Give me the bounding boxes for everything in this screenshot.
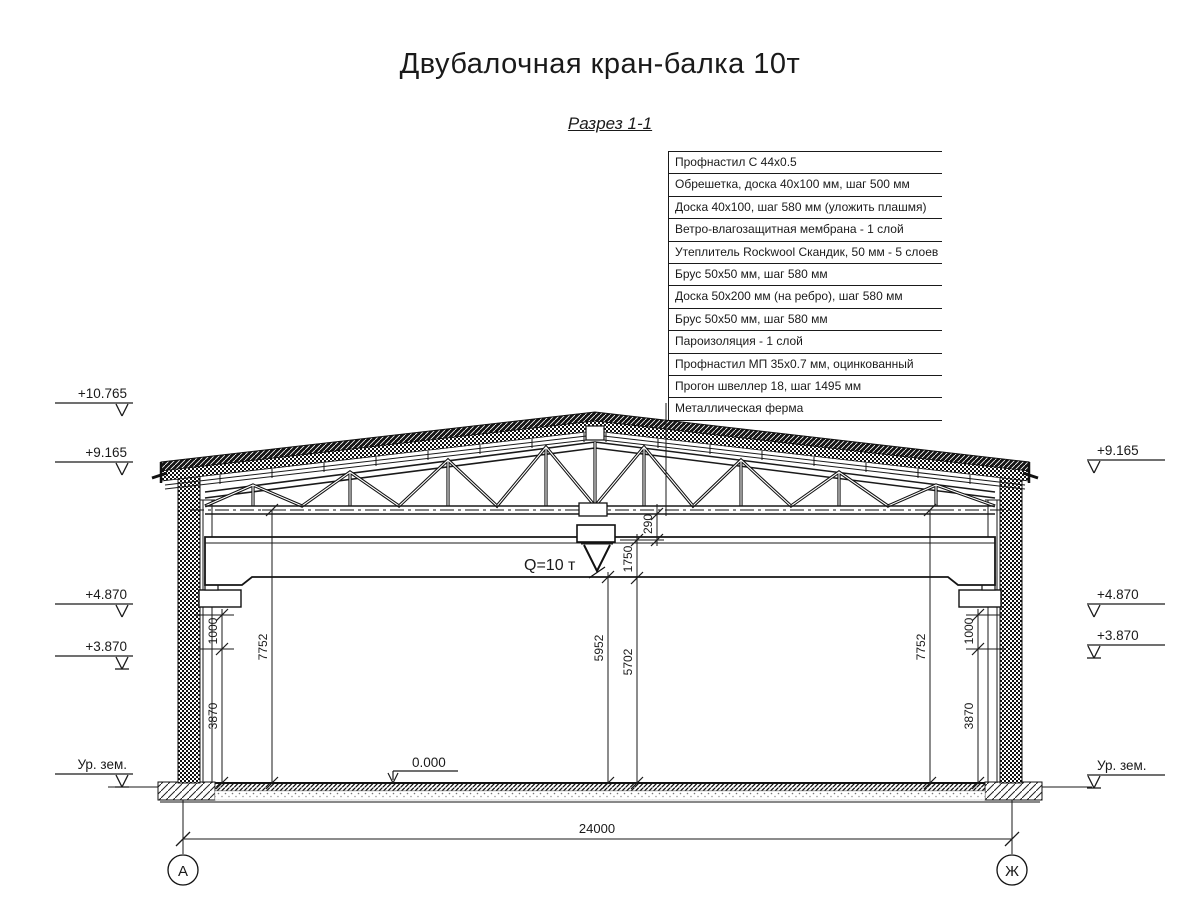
dim-label: 5702 [621, 648, 635, 675]
chord-center-plate [579, 503, 607, 516]
elevation-label-ground: Ур. зем. [77, 757, 127, 772]
ridge-node [586, 426, 604, 440]
crane-capacity-label: Q=10 т [524, 557, 576, 574]
elevation-mark [55, 604, 133, 617]
elevation-label: +9.165 [85, 445, 127, 460]
elevation-mark [1087, 604, 1165, 617]
grid-axis-label: Ж [1005, 863, 1019, 880]
wall-right [1000, 476, 1022, 783]
dim-label: 1750 [621, 545, 635, 572]
elevation-mark-ground [1087, 775, 1165, 788]
dim-label: 1000 [206, 617, 220, 644]
grid-bubble-left: А [168, 855, 198, 885]
floor-zero-mark [388, 771, 458, 783]
elevation-mark [55, 462, 133, 475]
grid-axis-label: А [178, 863, 188, 880]
corbel-left [199, 590, 241, 607]
elevation-label-ground: Ур. зем. [1097, 758, 1147, 773]
grid-bubble-right: Ж [997, 855, 1027, 885]
floor-zero-label: 0.000 [412, 755, 446, 770]
section-drawing: Q=10 т 7752 1000 3870 [0, 0, 1200, 900]
corbel-right [959, 590, 1001, 607]
foundation-left [108, 782, 215, 800]
elevation-mark-ground [55, 774, 133, 787]
elevation-marks-right [1087, 460, 1165, 788]
dim-label-span: 24000 [579, 821, 615, 836]
elevation-mark [1087, 460, 1165, 473]
dim-label: 3870 [962, 702, 976, 729]
elevation-label: +4.870 [85, 587, 127, 602]
drawing-sheet: Двубалочная кран-балка 10т Разрез 1-1 Пр… [0, 0, 1200, 900]
elevation-mark [55, 656, 133, 669]
dim-label: 5952 [592, 634, 606, 661]
dim-label: 3870 [206, 702, 220, 729]
elevation-label: +4.870 [1097, 587, 1139, 602]
dim-label: 290 [641, 514, 655, 534]
elevation-mark [55, 403, 133, 416]
foundation-right [985, 782, 1092, 800]
elevation-label: +3.870 [1097, 628, 1139, 643]
elevation-label: +9.165 [1097, 443, 1139, 458]
elevation-mark [1087, 645, 1165, 658]
dim-label: 7752 [256, 633, 270, 660]
floor-slab [160, 783, 1040, 802]
dim-label: 1000 [962, 617, 976, 644]
dim-label: 7752 [914, 633, 928, 660]
elevation-label: +3.870 [85, 639, 127, 654]
wall-left [178, 476, 200, 783]
elevation-label: +10.765 [78, 386, 127, 401]
